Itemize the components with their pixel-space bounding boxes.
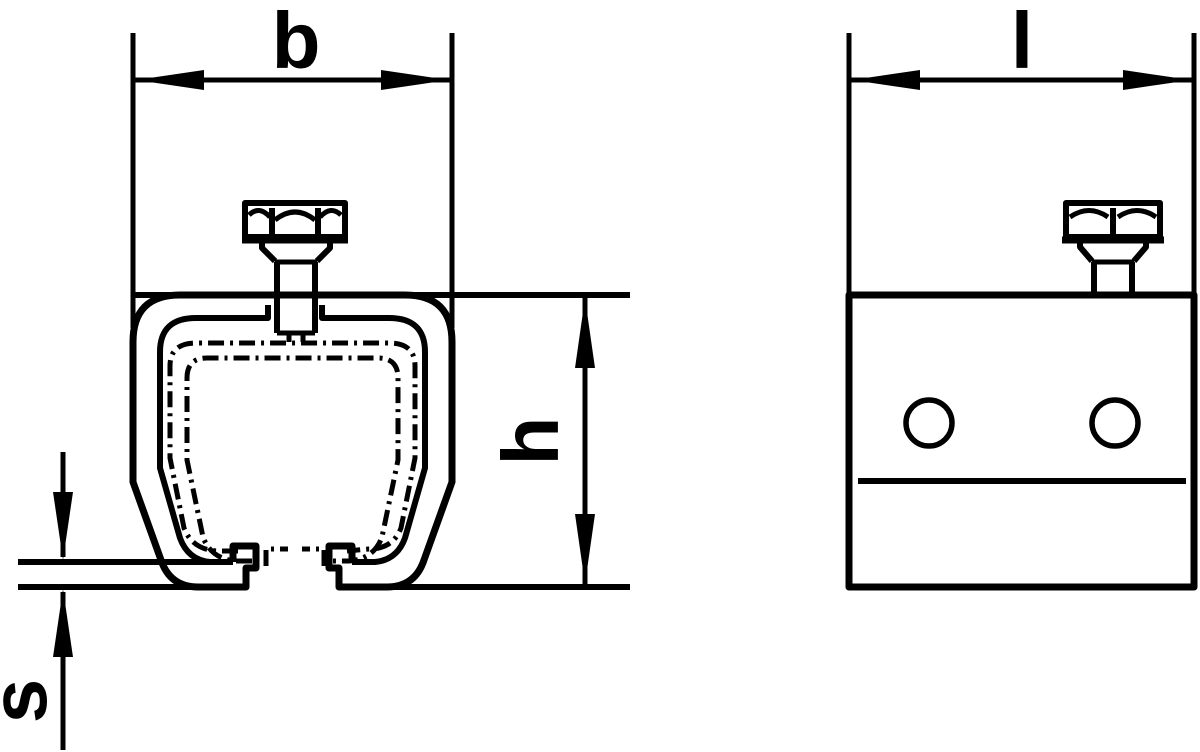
l-arrowhead-left bbox=[852, 70, 920, 90]
s-arrowhead-down bbox=[53, 492, 73, 560]
dimension-b: b bbox=[133, 0, 452, 328]
l-dimension-label: l bbox=[1011, 0, 1033, 85]
s-dimension-label: s bbox=[0, 679, 63, 724]
bolt-head-chamfer-arc bbox=[320, 210, 341, 217]
side-view: l bbox=[849, 0, 1194, 587]
bolt-neck-taper-left bbox=[1080, 243, 1092, 261]
bolt-neck-taper-right bbox=[317, 243, 330, 261]
bolt-head-chamfer-arc bbox=[275, 212, 315, 220]
phantom-contour-inner bbox=[187, 358, 398, 561]
bolt-neck-taper-right bbox=[1134, 243, 1146, 261]
h-arrowhead-bottom bbox=[575, 514, 595, 584]
dimension-h: h bbox=[486, 297, 595, 585]
dimension-s: s bbox=[0, 452, 73, 750]
bolt-neck-taper-left bbox=[262, 243, 275, 261]
clamp-body-outline bbox=[849, 295, 1194, 587]
mounting-hole-left bbox=[906, 400, 952, 446]
h-arrowhead-top bbox=[575, 298, 595, 368]
s-arrowhead-up bbox=[53, 589, 73, 657]
technical-drawing-page: b bbox=[0, 0, 1200, 752]
phantom-contour-outer bbox=[170, 343, 415, 551]
hex-bolt-side bbox=[1062, 203, 1164, 293]
bolt-head-chamfer-arc bbox=[249, 210, 270, 217]
b-arrowhead-right bbox=[381, 70, 449, 90]
phantom-lip-left bbox=[266, 549, 288, 566]
phantom-lip-right bbox=[302, 549, 324, 566]
b-arrowhead-left bbox=[136, 70, 204, 90]
rail-clamp-drawing: b bbox=[0, 0, 1200, 752]
h-dimension-label: h bbox=[486, 417, 575, 466]
hex-bolt-front bbox=[242, 203, 348, 342]
l-arrowhead-right bbox=[1123, 70, 1191, 90]
front-view: b bbox=[0, 0, 630, 750]
b-dimension-label: b bbox=[272, 0, 321, 85]
bolt-head-chamfer-arc bbox=[1118, 211, 1156, 218]
mounting-hole-right bbox=[1092, 400, 1138, 446]
bolt-head-chamfer-arc bbox=[1070, 211, 1108, 218]
